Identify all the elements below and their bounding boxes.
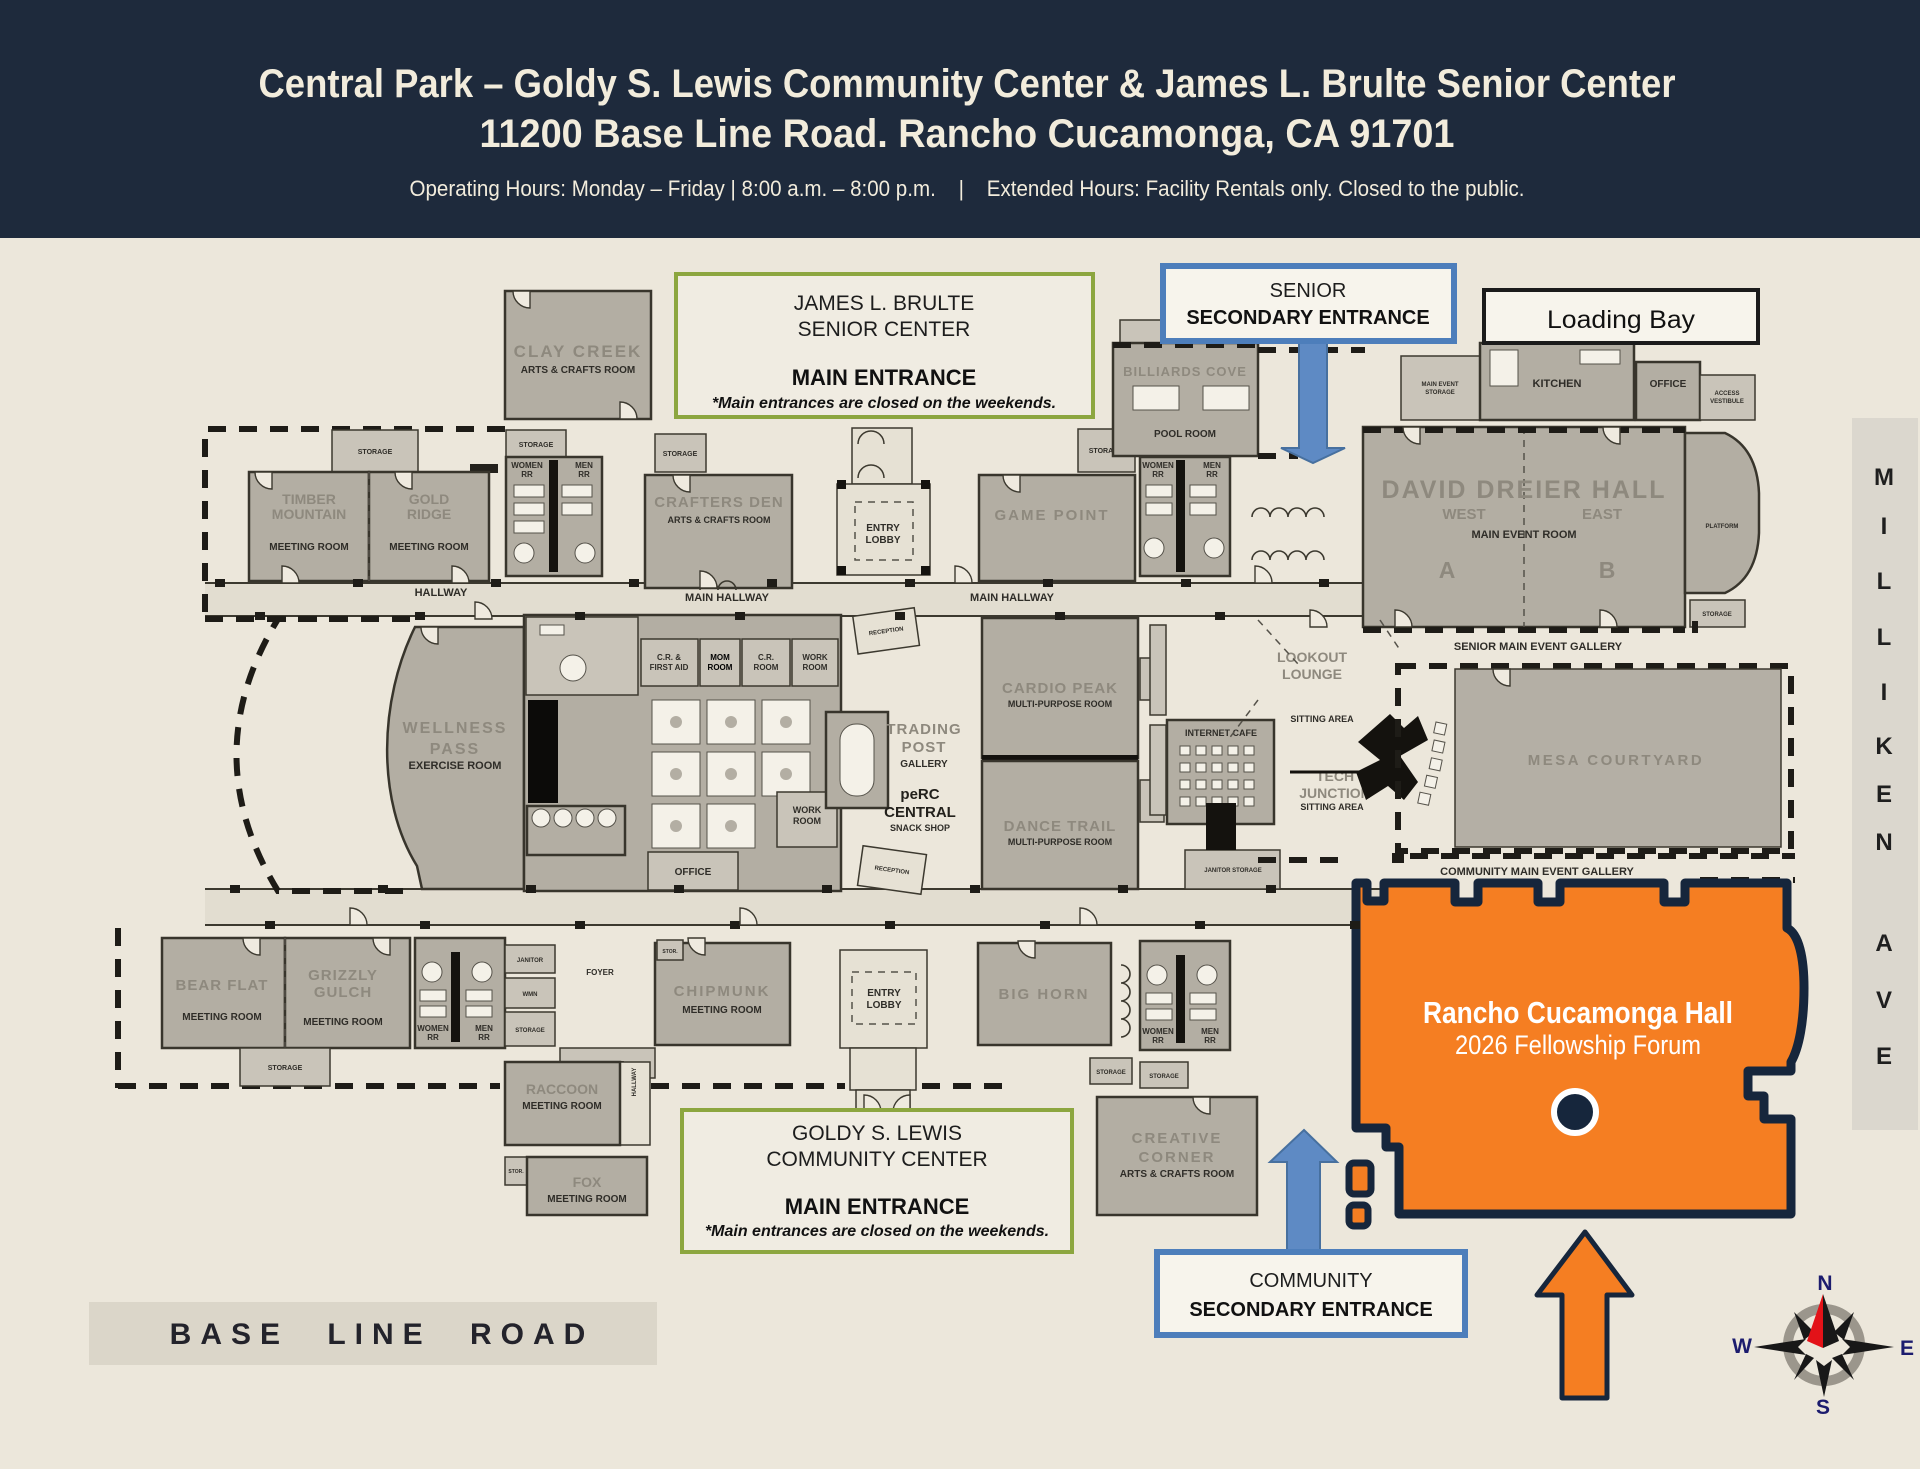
svg-text:A: A xyxy=(1439,557,1456,583)
svg-text:STORAGE: STORAGE xyxy=(1096,1070,1126,1076)
svg-text:GULCH: GULCH xyxy=(314,984,372,1001)
svg-text:SENIOR: SENIOR xyxy=(1270,280,1347,302)
svg-text:ROOM: ROOM xyxy=(708,663,733,672)
svg-text:MULTI-PURPOSE ROOM: MULTI-PURPOSE ROOM xyxy=(1008,837,1112,847)
svg-text:GOLD: GOLD xyxy=(409,491,449,507)
svg-text:MESA COURTYARD: MESA COURTYARD xyxy=(1528,752,1704,769)
svg-text:VESTIBULE: VESTIBULE xyxy=(1710,399,1744,405)
svg-text:CRAFTERS DEN: CRAFTERS DEN xyxy=(654,494,784,511)
svg-text:CARDIO PEAK: CARDIO PEAK xyxy=(1002,680,1118,697)
svg-text:BIG HORN: BIG HORN xyxy=(999,986,1090,1003)
svg-text:MAIN ENTRANCE: MAIN ENTRANCE xyxy=(792,365,977,390)
svg-text:WOMEN: WOMEN xyxy=(1142,1027,1174,1036)
svg-text:RACCOON: RACCOON xyxy=(526,1081,598,1097)
svg-text:CREATIVE: CREATIVE xyxy=(1132,1130,1223,1147)
svg-text:ARTS & CRAFTS ROOM: ARTS & CRAFTS ROOM xyxy=(521,365,635,376)
svg-text:COMMUNITY CENTER: COMMUNITY CENTER xyxy=(766,1148,987,1171)
svg-text:EAST: EAST xyxy=(1582,506,1622,523)
svg-text:SITTING AREA: SITTING AREA xyxy=(1300,802,1364,812)
svg-text:ENTRY: ENTRY xyxy=(867,988,901,999)
svg-text:WEST: WEST xyxy=(1442,506,1485,523)
svg-text:WORK: WORK xyxy=(793,805,822,815)
svg-text:RR: RR xyxy=(1152,470,1164,479)
svg-text:LOUNGE: LOUNGE xyxy=(1282,666,1342,682)
svg-text:WOMEN: WOMEN xyxy=(511,461,543,470)
svg-text:SENIOR CENTER: SENIOR CENTER xyxy=(798,318,971,341)
svg-text:11200 Base Line Road. Rancho: 11200 Base Line Road. Rancho Cucamonga, … xyxy=(480,112,1455,156)
svg-text:MEETING ROOM: MEETING ROOM xyxy=(182,1012,261,1023)
svg-text:CORNER: CORNER xyxy=(1138,1149,1215,1166)
svg-text:DAVID DREIER HALL: DAVID DREIER HALL xyxy=(1382,476,1667,504)
svg-text:TECH: TECH xyxy=(1316,768,1354,784)
svg-text:RR: RR xyxy=(578,470,590,479)
svg-text:W: W xyxy=(1732,1335,1752,1358)
svg-text:MEN: MEN xyxy=(575,461,593,470)
svg-text:ROOM: ROOM xyxy=(803,663,828,672)
svg-text:MEN: MEN xyxy=(1201,1027,1219,1036)
svg-text:STORAGE: STORAGE xyxy=(663,451,698,458)
svg-text:peRC: peRC xyxy=(900,786,939,803)
svg-text:K: K xyxy=(1875,733,1893,760)
svg-text:FIRST AID: FIRST AID xyxy=(650,663,689,672)
svg-text:PLATFORM: PLATFORM xyxy=(1706,524,1739,530)
svg-text:PASS: PASS xyxy=(430,741,480,758)
svg-text:*Main entrances are closed on: *Main entrances are closed on the weeken… xyxy=(705,1223,1049,1240)
svg-text:ROOM: ROOM xyxy=(754,663,779,672)
svg-text:STORAGE: STORAGE xyxy=(268,1065,303,1072)
svg-text:CHIPMUNK: CHIPMUNK xyxy=(674,983,771,1000)
svg-text:COMMUNITY: COMMUNITY xyxy=(1249,1270,1372,1292)
svg-text:MAIN ENTRANCE: MAIN ENTRANCE xyxy=(785,1194,970,1219)
svg-text:KITCHEN: KITCHEN xyxy=(1533,378,1582,390)
svg-text:I: I xyxy=(1881,513,1888,540)
svg-text:EXERCISE ROOM: EXERCISE ROOM xyxy=(409,760,502,772)
svg-text:RR: RR xyxy=(1152,1036,1164,1045)
svg-text:SITTING AREA: SITTING AREA xyxy=(1290,714,1354,724)
svg-text:C.R.: C.R. xyxy=(758,653,774,662)
svg-text:Central Park – Goldy S. Lewis: Central Park – Goldy S. Lewis Community … xyxy=(259,62,1676,106)
svg-text:2026 Fellowship Forum: 2026 Fellowship Forum xyxy=(1455,1030,1701,1060)
svg-text:I: I xyxy=(1881,679,1888,706)
svg-text:STORAGE: STORAGE xyxy=(1149,1074,1179,1080)
svg-text:WOMEN: WOMEN xyxy=(1142,461,1174,470)
svg-text:BEAR FLAT: BEAR FLAT xyxy=(176,977,269,994)
svg-text:SNACK SHOP: SNACK SHOP xyxy=(890,823,950,833)
svg-text:STORAGE: STORAGE xyxy=(1702,612,1732,618)
svg-text:CLAY CREEK: CLAY CREEK xyxy=(514,342,643,361)
svg-text:STORAGE: STORAGE xyxy=(519,442,554,449)
svg-text:Operating Hours: Monday – Frid: Operating Hours: Monday – Friday | 8:00 … xyxy=(410,176,1525,201)
svg-text:GOLDY S. LEWIS: GOLDY S. LEWIS xyxy=(792,1122,962,1145)
svg-text:RR: RR xyxy=(478,1033,490,1042)
svg-text:RR: RR xyxy=(427,1033,439,1042)
svg-text:ROOM: ROOM xyxy=(793,816,821,826)
svg-text:TIMBER: TIMBER xyxy=(282,491,336,507)
svg-text:POOL ROOM: POOL ROOM xyxy=(1154,429,1216,440)
svg-text:HALLWAY: HALLWAY xyxy=(415,587,468,599)
svg-text:RR: RR xyxy=(1204,1036,1216,1045)
svg-text:LOOKOUT: LOOKOUT xyxy=(1277,649,1347,665)
svg-text:WMN: WMN xyxy=(523,992,538,998)
svg-text:JAMES L. BRULTE: JAMES L. BRULTE xyxy=(794,292,975,315)
svg-text:INTERNET CAFE: INTERNET CAFE xyxy=(1185,728,1257,738)
svg-text:E: E xyxy=(1876,1043,1892,1070)
svg-text:CENTRAL: CENTRAL xyxy=(884,804,956,821)
svg-text:DANCE TRAIL: DANCE TRAIL xyxy=(1004,818,1117,835)
svg-text:L: L xyxy=(1877,624,1892,651)
svg-text:RIDGE: RIDGE xyxy=(407,506,451,522)
svg-text:MEETING ROOM: MEETING ROOM xyxy=(522,1101,601,1112)
svg-text:LOBBY: LOBBY xyxy=(866,535,901,546)
svg-text:LOBBY: LOBBY xyxy=(867,1000,902,1011)
svg-text:S: S xyxy=(1816,1396,1830,1419)
svg-text:V: V xyxy=(1876,987,1892,1014)
svg-text:ARTS & CRAFTS ROOM: ARTS & CRAFTS ROOM xyxy=(1120,1169,1234,1180)
svg-text:STORAGE: STORAGE xyxy=(515,1028,545,1034)
svg-text:B: B xyxy=(1599,557,1616,583)
svg-text:MEETING ROOM: MEETING ROOM xyxy=(389,542,468,553)
svg-text:MAIN EVENT: MAIN EVENT xyxy=(1421,382,1458,388)
svg-text:JANITOR STORAGE: JANITOR STORAGE xyxy=(1204,868,1261,874)
svg-text:COMMUNITY MAIN EVENT GALLERY: COMMUNITY MAIN EVENT GALLERY xyxy=(1440,866,1634,878)
svg-text:STORAGE: STORAGE xyxy=(1425,390,1455,396)
svg-text:ACCESS: ACCESS xyxy=(1714,391,1739,397)
svg-text:N: N xyxy=(1817,1272,1832,1295)
svg-text:SENIOR MAIN EVENT GALLERY: SENIOR MAIN EVENT GALLERY xyxy=(1454,641,1623,653)
svg-text:FOX: FOX xyxy=(573,1174,602,1190)
svg-text:POST: POST xyxy=(902,739,947,756)
svg-text:OFFICE: OFFICE xyxy=(1650,379,1687,390)
svg-text:STOR.: STOR. xyxy=(508,1169,524,1175)
svg-text:E: E xyxy=(1876,781,1892,808)
svg-text:M: M xyxy=(1874,464,1894,491)
svg-text:OFFICE: OFFICE xyxy=(675,867,712,878)
svg-text:GALLERY: GALLERY xyxy=(900,759,948,770)
svg-text:C.R. &: C.R. & xyxy=(657,653,681,662)
svg-text:JUNCTION: JUNCTION xyxy=(1299,785,1371,801)
svg-text:JANITOR: JANITOR xyxy=(517,958,544,964)
svg-text:MOUNTAIN: MOUNTAIN xyxy=(272,506,346,522)
svg-text:ENTRY: ENTRY xyxy=(866,523,900,534)
svg-text:BASE LINE ROAD: BASE LINE ROAD xyxy=(170,1318,595,1351)
svg-text:SECONDARY ENTRANCE: SECONDARY ENTRANCE xyxy=(1186,307,1429,329)
svg-text:MAIN HALLWAY: MAIN HALLWAY xyxy=(970,592,1055,604)
svg-text:ARTS & CRAFTS ROOM: ARTS & CRAFTS ROOM xyxy=(668,515,771,525)
svg-text:WELLNESS: WELLNESS xyxy=(403,720,508,737)
svg-text:GAME POINT: GAME POINT xyxy=(994,507,1109,524)
svg-text:*Main entrances are closed on: *Main entrances are closed on the weeken… xyxy=(712,395,1056,412)
svg-text:BILLIARDS COVE: BILLIARDS COVE xyxy=(1123,364,1247,379)
svg-text:MAIN HALLWAY: MAIN HALLWAY xyxy=(685,592,770,604)
svg-text:E: E xyxy=(1900,1337,1914,1360)
svg-text:RR: RR xyxy=(1206,470,1218,479)
svg-text:RR: RR xyxy=(521,470,533,479)
svg-text:MEETING ROOM: MEETING ROOM xyxy=(682,1005,761,1016)
svg-text:MEN: MEN xyxy=(475,1024,493,1033)
svg-text:WORK: WORK xyxy=(802,653,828,662)
svg-text:MEETING ROOM: MEETING ROOM xyxy=(303,1017,382,1028)
svg-text:TRADING: TRADING xyxy=(886,721,961,738)
svg-text:A: A xyxy=(1875,930,1892,957)
svg-text:N: N xyxy=(1875,829,1892,856)
svg-text:MOM: MOM xyxy=(710,653,730,662)
svg-text:GRIZZLY: GRIZZLY xyxy=(308,967,378,984)
svg-text:SECONDARY ENTRANCE: SECONDARY ENTRANCE xyxy=(1189,1299,1432,1321)
svg-text:WOMEN: WOMEN xyxy=(417,1024,449,1033)
svg-text:Loading Bay: Loading Bay xyxy=(1547,306,1696,334)
svg-text:MEETING ROOM: MEETING ROOM xyxy=(269,542,348,553)
svg-text:STORAGE: STORAGE xyxy=(358,449,393,456)
svg-text:MEN: MEN xyxy=(1203,461,1221,470)
svg-text:FOYER: FOYER xyxy=(586,968,614,977)
svg-text:Rancho Cucamonga Hall: Rancho Cucamonga Hall xyxy=(1423,995,1733,1030)
svg-text:MEETING ROOM: MEETING ROOM xyxy=(547,1194,626,1205)
svg-text:MULTI-PURPOSE ROOM: MULTI-PURPOSE ROOM xyxy=(1008,699,1112,709)
svg-text:HALLWAY: HALLWAY xyxy=(632,1068,638,1097)
svg-text:MAIN EVENT ROOM: MAIN EVENT ROOM xyxy=(1471,529,1576,541)
svg-text:STOR.: STOR. xyxy=(662,949,678,955)
svg-text:L: L xyxy=(1877,568,1892,595)
